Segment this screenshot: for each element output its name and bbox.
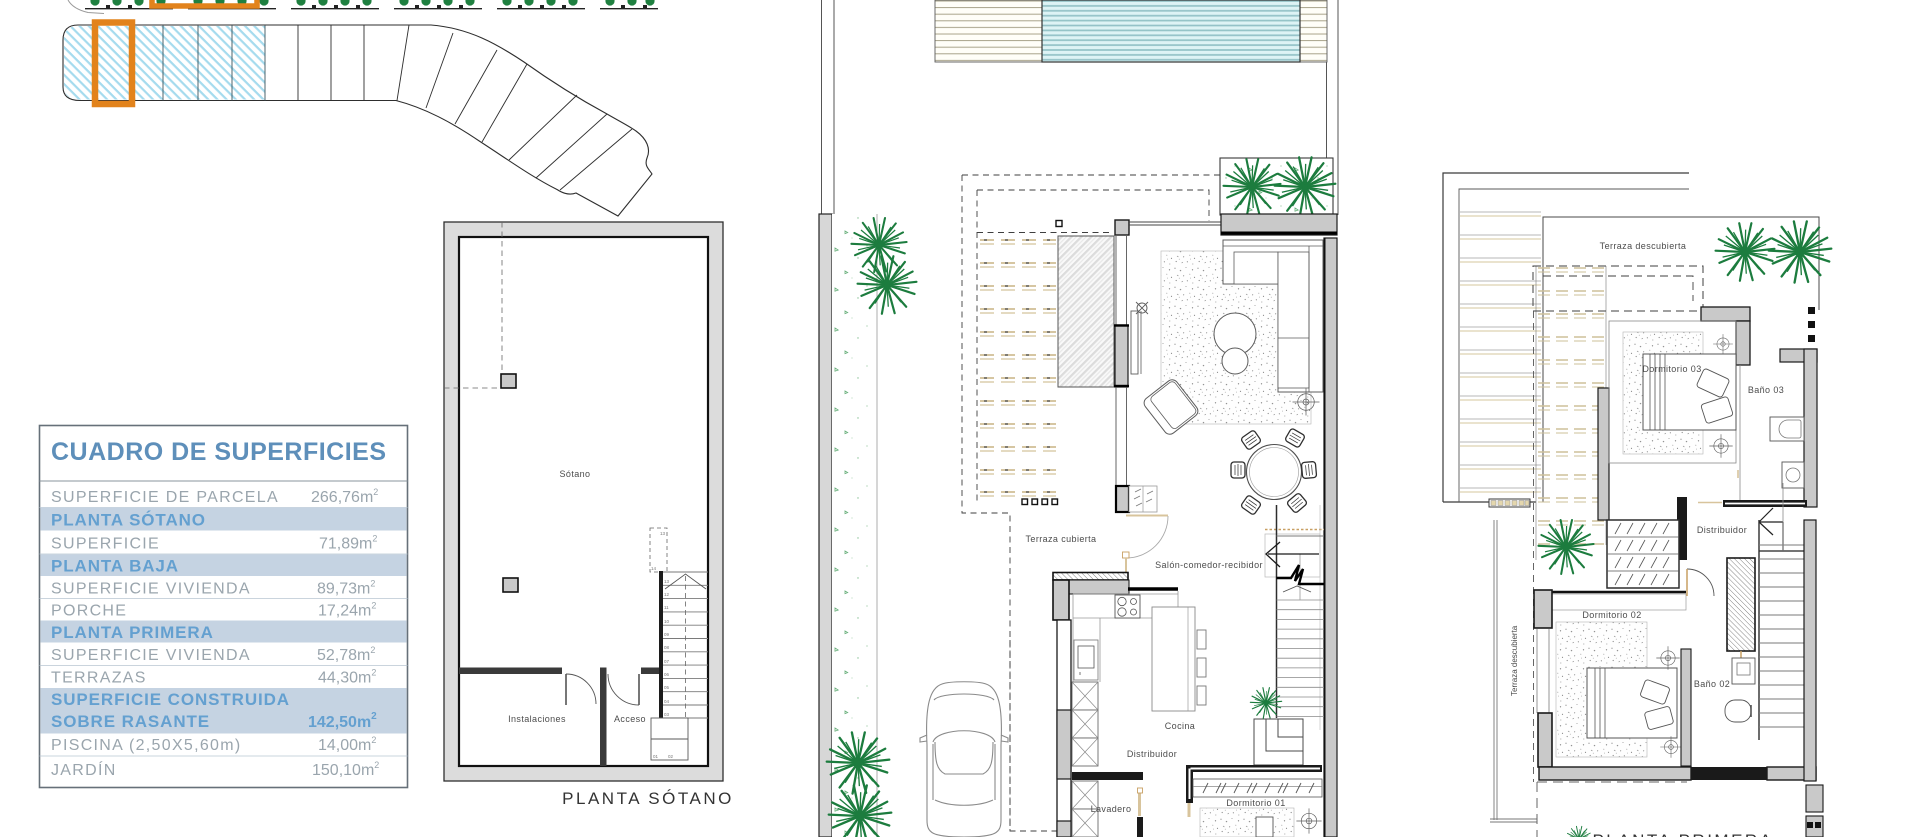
svg-text:Cocina: Cocina: [1165, 721, 1195, 731]
svg-text:142,50m2: 142,50m2: [308, 711, 377, 731]
svg-text:266,76m2: 266,76m2: [311, 487, 378, 506]
svg-text:TERRAZAS: TERRAZAS: [51, 670, 147, 687]
svg-text:PORCHE: PORCHE: [51, 603, 127, 620]
svg-text:14: 14: [651, 566, 657, 571]
svg-text:PLANTA SÓTANO: PLANTA SÓTANO: [51, 511, 206, 530]
svg-text:Baño 03: Baño 03: [1748, 385, 1784, 395]
svg-text:07: 07: [664, 659, 670, 664]
svg-text:Distribuidor: Distribuidor: [1127, 749, 1177, 759]
svg-text:SUPERFICIE: SUPERFICIE: [51, 536, 160, 553]
svg-text:Dormitorio 03: Dormitorio 03: [1642, 364, 1701, 374]
svg-text:PLANTA PRIMERA: PLANTA PRIMERA: [1592, 831, 1773, 837]
svg-text:06: 06: [664, 672, 670, 677]
svg-text:44,30m2: 44,30m2: [318, 668, 376, 687]
svg-text:Baño 02: Baño 02: [1694, 679, 1730, 689]
svg-text:01: 01: [653, 754, 659, 759]
svg-text:14,00m2: 14,00m2: [318, 735, 376, 754]
svg-text:PISCINA (2,50X5,60m): PISCINA (2,50X5,60m): [51, 737, 242, 754]
svg-text:10: 10: [664, 619, 670, 624]
svg-text:Dormitorio 02: Dormitorio 02: [1582, 610, 1641, 620]
svg-text:08: 08: [664, 645, 670, 650]
svg-text:Lavadero: Lavadero: [1091, 804, 1132, 814]
svg-text:13: 13: [664, 579, 670, 584]
svg-text:SUPERFICIE VIVIENDA: SUPERFICIE VIVIENDA: [51, 647, 251, 664]
svg-text:SUPERFICIE CONSTRUIDA: SUPERFICIE CONSTRUIDA: [51, 690, 290, 709]
svg-text:CUADRO DE SUPERFICIES: CUADRO DE SUPERFICIES: [51, 438, 387, 466]
svg-text:SOBRE RASANTE: SOBRE RASANTE: [51, 712, 210, 731]
svg-text:13: 13: [660, 531, 666, 536]
svg-text:SUPERFICIE VIVIENDA: SUPERFICIE VIVIENDA: [51, 581, 251, 598]
svg-text:89,73m2: 89,73m2: [317, 579, 375, 598]
svg-text:Instalaciones: Instalaciones: [508, 714, 566, 724]
svg-text:SUPERFICIE DE PARCELA: SUPERFICIE DE PARCELA: [51, 489, 279, 506]
svg-text:150,10m2: 150,10m2: [312, 760, 379, 779]
svg-text:05: 05: [664, 685, 670, 690]
svg-text:PLANTA SÓTANO: PLANTA SÓTANO: [562, 789, 734, 808]
svg-text:09: 09: [664, 632, 670, 637]
svg-text:PLANTA PRIMERA: PLANTA PRIMERA: [51, 623, 214, 642]
svg-text:52,78m2: 52,78m2: [317, 645, 375, 664]
svg-text:Distribuidor: Distribuidor: [1697, 525, 1747, 535]
svg-text:Acceso: Acceso: [614, 714, 646, 724]
svg-text:Terraza descubierta: Terraza descubierta: [1510, 625, 1519, 696]
svg-text:12: 12: [664, 592, 670, 597]
svg-text:Terraza cubierta: Terraza cubierta: [1026, 534, 1097, 544]
svg-text:Sótano: Sótano: [560, 469, 591, 479]
svg-text:04: 04: [664, 699, 670, 704]
svg-text:03: 03: [664, 712, 670, 717]
svg-text:Salón-comedor-recibidor: Salón-comedor-recibidor: [1155, 560, 1263, 570]
svg-text:17,24m2: 17,24m2: [318, 601, 376, 620]
svg-text:Terraza descubierta: Terraza descubierta: [1600, 241, 1687, 251]
svg-text:11: 11: [664, 605, 669, 610]
svg-text:71,89m2: 71,89m2: [319, 534, 377, 553]
svg-text:JARDÍN: JARDÍN: [51, 760, 117, 779]
svg-text:02: 02: [668, 754, 674, 759]
svg-text:PLANTA BAJA: PLANTA BAJA: [51, 557, 179, 576]
svg-text:Dormitorio 01: Dormitorio 01: [1226, 798, 1285, 808]
